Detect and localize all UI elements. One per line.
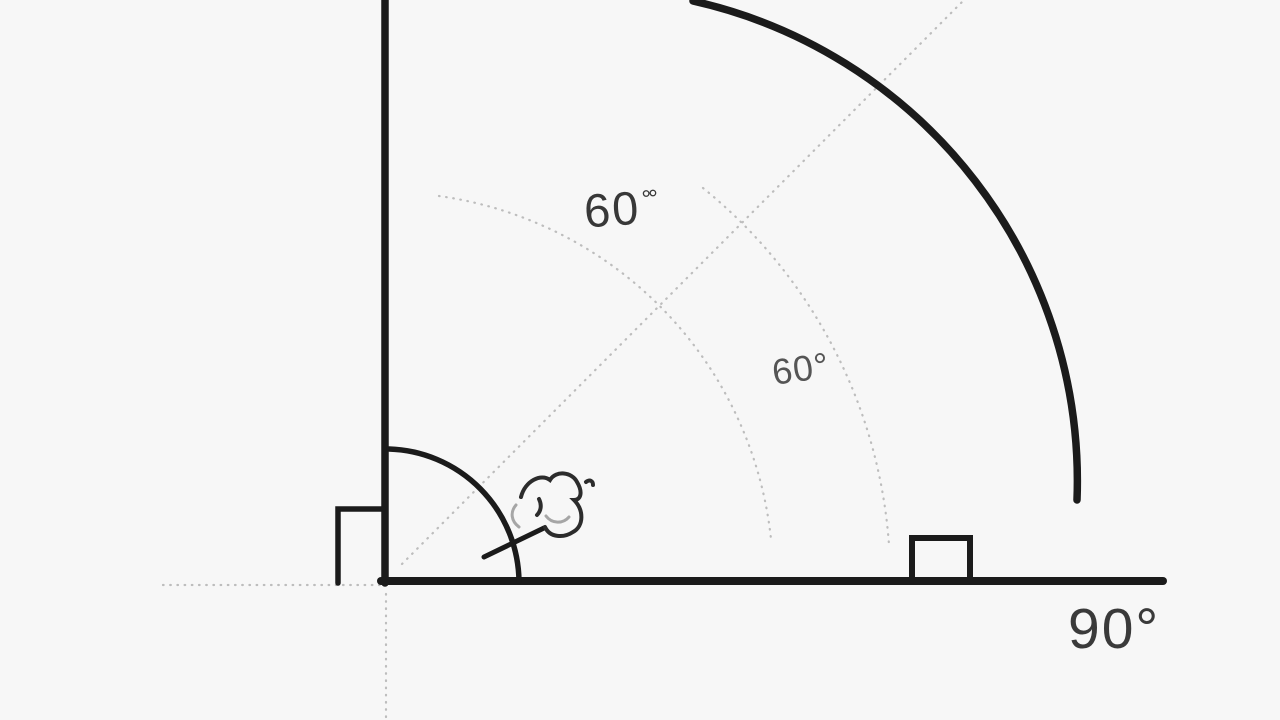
small-angle-arc — [389, 449, 519, 581]
angle-label-60-inner: 60° — [769, 344, 832, 394]
right-angle-marker-left — [338, 509, 383, 583]
scribble-inner-tick — [537, 499, 541, 515]
large-arc — [693, 1, 1077, 500]
scribble-left-fragment — [512, 505, 519, 527]
scribble-bottom-curve — [546, 516, 569, 522]
angle-label-90: 90° — [1068, 596, 1160, 662]
degree-mark-double: °° — [641, 186, 656, 214]
scribble-apostrophe — [586, 481, 593, 485]
diagram-canvas: 60°° 60° 90° — [0, 0, 1280, 720]
angle-label-60-outer-value: 60 — [582, 181, 642, 238]
dotted-arc-inner — [439, 196, 771, 539]
scribbled-angle-label — [512, 473, 593, 536]
scribble-outline — [521, 473, 581, 536]
angle-label-60-outer: 60°° — [582, 179, 657, 239]
right-angle-marker-right — [912, 538, 970, 581]
